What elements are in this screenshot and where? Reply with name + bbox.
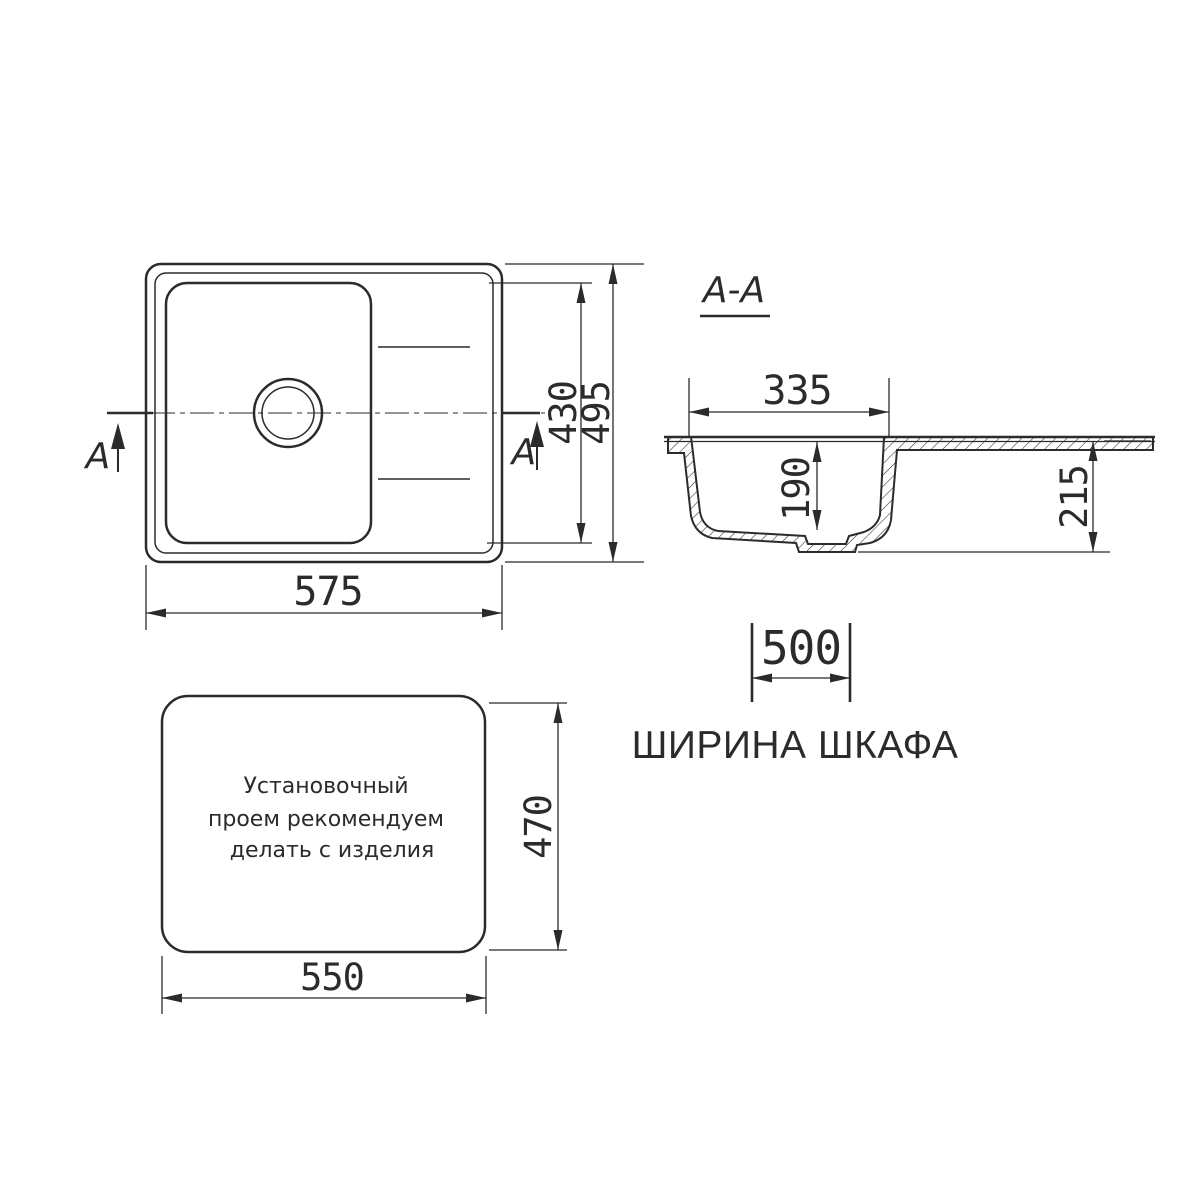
- arrowhead: [577, 523, 586, 543]
- dimension-470: 470: [489, 703, 567, 950]
- arrowhead: [482, 609, 502, 618]
- arrowhead: [577, 283, 586, 303]
- arrowhead: [466, 994, 486, 1003]
- arrowhead: [869, 408, 889, 417]
- dimension-550: 550: [162, 956, 486, 1014]
- arrowhead: [609, 542, 618, 562]
- drawing-svg: A A 575 430 495: [0, 0, 1200, 1200]
- dim-label-215: 215: [1053, 465, 1096, 529]
- technical-drawing-sink: A A 575 430 495: [0, 0, 1200, 1200]
- cutout-note-line3: делать с изделия: [230, 838, 435, 863]
- dim-label-190: 190: [775, 457, 818, 521]
- dim-label-550: 550: [300, 956, 364, 999]
- section-title: A-A: [701, 270, 765, 311]
- section-view: A-A 335 190 215: [664, 270, 1155, 552]
- dim-label-335: 335: [762, 368, 831, 414]
- section-letter-right: A: [510, 432, 537, 473]
- dim-label-495: 495: [575, 381, 618, 445]
- dimension-215: 215: [858, 441, 1151, 552]
- cabinet-width-caption: ШИРИНА ШКАФА: [632, 724, 959, 767]
- section-letter-left: A: [84, 436, 111, 477]
- cutout-note-line1: Установочный: [243, 774, 408, 799]
- cutout-view: Установочный проем рекомендуем делать с …: [162, 696, 567, 1014]
- top-view: A A 575 430 495: [84, 264, 644, 630]
- arrowhead: [554, 930, 563, 950]
- dimension-190: 190: [775, 442, 822, 530]
- dim-label-470: 470: [517, 795, 560, 859]
- dimension-575: 575: [146, 565, 502, 630]
- arrowhead: [609, 264, 618, 284]
- dim-label-575: 575: [293, 569, 362, 615]
- cabinet-width-note: 500 ШИРИНА ШКАФА: [632, 621, 959, 767]
- dim-label-500: 500: [761, 621, 841, 675]
- arrowhead: [146, 609, 166, 618]
- arrowhead: [162, 994, 182, 1003]
- arrowhead: [689, 408, 709, 417]
- section-arrowhead-left: [111, 423, 125, 449]
- cutout-note-line2: проем рекомендуем: [208, 807, 444, 832]
- arrowhead: [554, 703, 563, 723]
- dimension-335: 335: [689, 368, 889, 436]
- arrowhead: [1089, 532, 1098, 552]
